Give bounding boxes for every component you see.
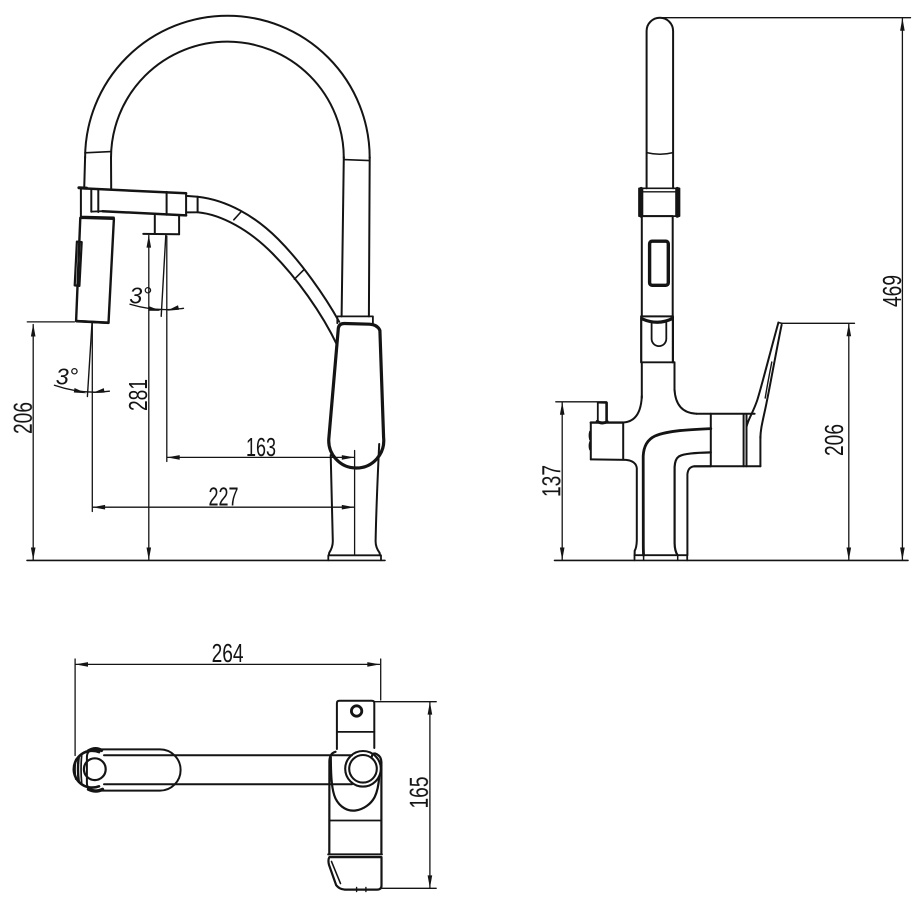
svg-text:165: 165 [406,777,434,809]
svg-text:264: 264 [212,640,244,668]
svg-text:206: 206 [821,424,849,456]
svg-text:227: 227 [209,483,239,511]
svg-text:163: 163 [246,434,276,462]
svg-text:469: 469 [879,275,907,307]
svg-text:3°: 3° [129,283,151,309]
svg-text:206: 206 [10,402,38,434]
svg-text:3°: 3° [56,364,78,390]
svg-text:137: 137 [538,465,566,497]
svg-text:281: 281 [125,379,153,411]
